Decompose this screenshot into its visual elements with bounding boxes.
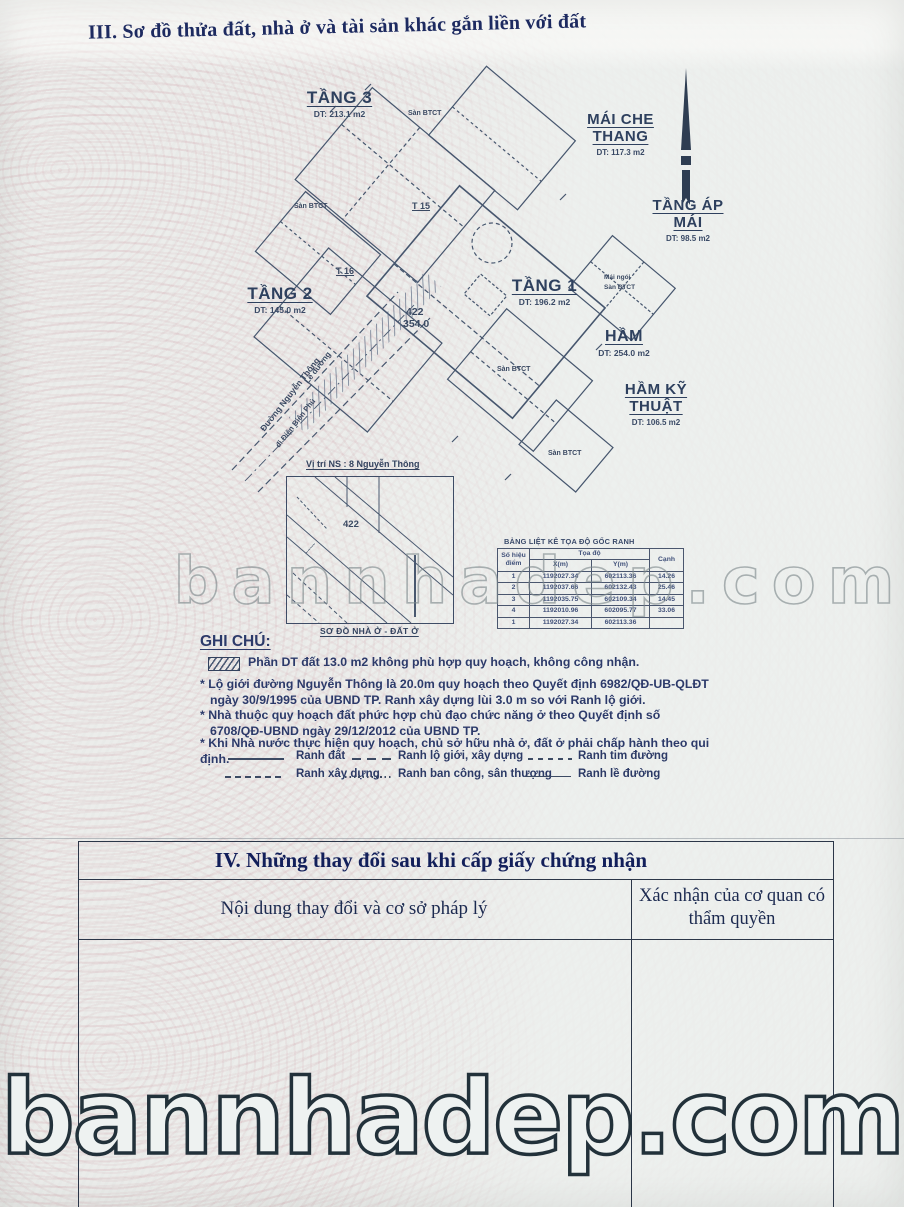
legend-line-ban-cong <box>345 776 393 778</box>
point-t16-label: T 16 <box>336 266 354 276</box>
cell-y: 602113.36 <box>592 617 650 628</box>
legend-line-lo-gioi <box>352 758 394 760</box>
floor-area: DT: 106.5 m2 <box>602 418 710 427</box>
parcel-area: 354.0 <box>403 318 429 330</box>
floor-name: TẦNG 1 <box>492 276 597 295</box>
section4-header-divider <box>79 879 833 880</box>
san-btct-label: Sàn BTCT <box>548 450 581 457</box>
location-map-caption: Vị trí NS : 8 Nguyễn Thông <box>306 459 420 469</box>
legend-line-le-duong <box>525 776 571 777</box>
mai-ngoi-label: Mái ngói <box>604 274 630 281</box>
floor-name: TẦNG ÁP MÁI <box>642 198 734 232</box>
floor-label-tang-2: TẦNG 2 DT: 145.0 m2 <box>225 284 335 315</box>
document-page: III. Sơ đồ thửa đất, nhà ở và tài sản kh… <box>0 0 904 1207</box>
legend-label: Ranh ban công, sân thượng <box>398 768 552 780</box>
floor-label-mai-che-thang: MÁI CHE THANG DT: 117.3 m2 <box>558 112 683 157</box>
floor-area: DT: 213.1 m2 <box>282 109 397 119</box>
san-btct-label: Sàn BTCT <box>604 284 635 291</box>
section4-row-divider <box>79 939 833 940</box>
floor-label-tang-3: TẦNG 3 DT: 213.1 m2 <box>282 88 397 119</box>
section4-col-confirm: Xác nhận của cơ quan có thẩm quyền <box>635 885 829 931</box>
cell-point: 1 <box>498 617 530 628</box>
floor-name: TẦNG 2 <box>225 284 335 303</box>
floor-label-ham-ky-thuat: HẦM KỸ THUẬT DT: 106.5 m2 <box>602 382 710 427</box>
cell-edge <box>650 617 684 628</box>
section3-title: III. Sơ đồ thửa đất, nhà ở và tài sản kh… <box>88 10 587 44</box>
floor-label-tang-ap-mai: TẦNG ÁP MÁI DT: 98.5 m2 <box>642 198 734 243</box>
floor-area: DT: 98.5 m2 <box>642 234 734 243</box>
floor-label-ham: HẦM DT: 254.0 m2 <box>585 328 663 358</box>
section4-col-content: Nội dung thay đổi và cơ sở pháp lý <box>99 897 609 921</box>
location-map-title: SƠ ĐỒ NHÀ Ở - ĐẤT Ở <box>320 626 419 636</box>
floor-area: DT: 145.0 m2 <box>225 305 335 315</box>
divider-line <box>0 838 904 839</box>
parcel-number: 422 <box>406 306 424 318</box>
legend-label: Ranh đất <box>296 750 345 762</box>
section4-title: IV. Những thay đổi sau khi cấp giấy chứn… <box>79 848 833 873</box>
san-btct-label: Sàn BTCT <box>294 203 327 210</box>
watermark-middle: bannhadep.com <box>170 545 904 619</box>
legend-label: Ranh lộ giới, xây dựng <box>398 750 523 762</box>
floor-name: TẦNG 3 <box>282 88 397 107</box>
floor-area: DT: 254.0 m2 <box>585 348 663 358</box>
legend-label: Ranh xây dựng <box>296 768 380 780</box>
notes-heading: GHI CHÚ: <box>200 633 271 651</box>
hatched-note: Phần DT đất 13.0 m2 không phù hợp quy ho… <box>248 655 688 671</box>
point-t15-label: T 15 <box>412 201 430 211</box>
floor-area: DT: 196.2 m2 <box>492 297 597 307</box>
table-row: 1 1192027.34 602113.36 <box>498 617 684 628</box>
cell-x: 1192027.34 <box>530 617 592 628</box>
floor-name: HẦM <box>585 328 663 346</box>
san-btct-label: Sàn BTCT <box>497 366 530 373</box>
legend-label: Ranh tim đường <box>578 750 668 762</box>
legend-label: Ranh lề đường <box>578 768 660 780</box>
hatch-legend-swatch <box>208 657 240 671</box>
legend-line-xay-dung <box>225 776 283 778</box>
legend-line-ranh-dat <box>228 758 284 760</box>
watermark-bottom: bannhadep.com <box>0 1058 904 1178</box>
note-item: * Lộ giới đường Nguyễn Thông là 20.0m qu… <box>200 677 710 708</box>
floor-label-tang-1: TẦNG 1 DT: 196.2 m2 <box>492 276 597 307</box>
floor-area: DT: 117.3 m2 <box>558 148 683 157</box>
legend-line-tim-duong <box>528 758 572 760</box>
floor-name: MÁI CHE THANG <box>558 112 683 146</box>
san-btct-label: Sàn BTCT <box>408 110 441 117</box>
map-parcel-number: 422 <box>343 519 359 530</box>
note-item: * Nhà thuộc quy hoạch đất phức hợp chủ đ… <box>200 708 710 739</box>
floor-name: HẦM KỸ THUẬT <box>602 382 710 416</box>
